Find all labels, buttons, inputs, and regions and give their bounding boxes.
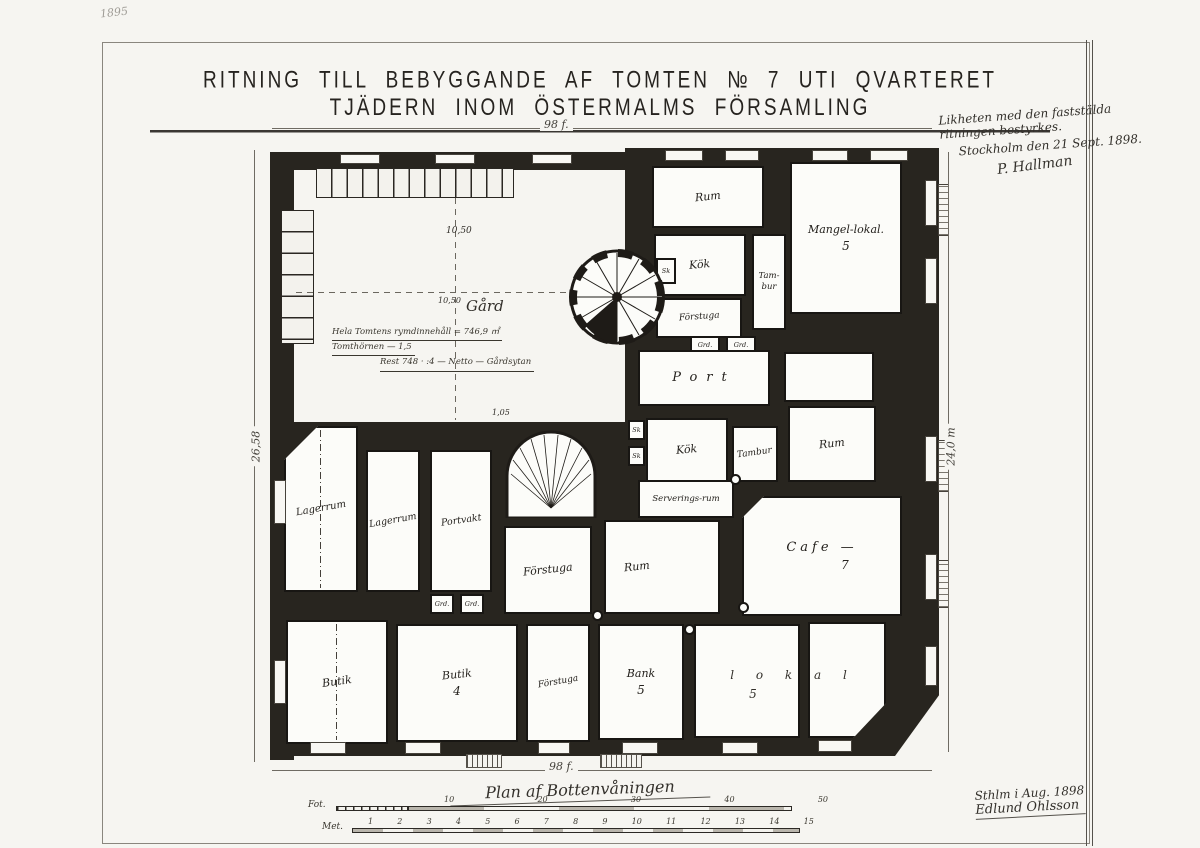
- room-unlabeled: [784, 352, 874, 402]
- window: [340, 154, 380, 164]
- courtyard-label-group: 10,50 Gård: [438, 296, 504, 315]
- dimension-bottom: 98 f.: [545, 760, 578, 773]
- half-round-staircase: [503, 426, 599, 518]
- courtyard-level-mark: 10,50: [446, 226, 472, 236]
- courtyard-skylight-grid: [316, 168, 514, 198]
- room-label: Tam-: [758, 271, 779, 282]
- room-rum-center: Rum: [604, 520, 720, 614]
- room-number: 5: [749, 687, 757, 701]
- signature-block: Sthlm i Aug. 1898 Edlund Ohlsson: [974, 783, 1085, 820]
- room-butik-1: Butik: [286, 620, 388, 744]
- room-label: Förstuga: [523, 561, 574, 580]
- room-sk-mid-a: Sk: [628, 420, 645, 440]
- window: [925, 646, 937, 686]
- window: [925, 554, 937, 600]
- column-lokal: [684, 624, 695, 635]
- room-label: Portvakt: [440, 512, 482, 529]
- pencil-note: 1895: [99, 5, 128, 21]
- room-label: Rum: [623, 559, 650, 575]
- room-kok-mid: Kök: [646, 418, 728, 482]
- dimension-line-top: [272, 128, 932, 129]
- window: [818, 740, 852, 752]
- room-label: Grd.: [465, 600, 480, 608]
- column-tambur: [730, 474, 741, 485]
- room-cafe: Cafe — 7: [742, 496, 902, 616]
- room-sk-mid-b: Sk: [628, 446, 645, 466]
- room-label: Grd.: [734, 341, 749, 349]
- room-label: Grd.: [435, 600, 450, 608]
- room-label: Rum: [694, 189, 721, 205]
- floor-plan: 10,50 10,50 Gård Hela Tomtens rymdinnehå…: [270, 140, 938, 765]
- room-label: Kök: [676, 442, 698, 458]
- window: [405, 742, 441, 754]
- calc-line-3: Rest 748 · :4 — Netto — Gårdsytan: [380, 356, 534, 371]
- room-tambur-top: Tam- bur: [752, 234, 786, 330]
- window: [870, 150, 908, 161]
- window: [925, 180, 937, 226]
- room-label: Sk: [632, 452, 640, 460]
- courtyard-label: Gård: [466, 297, 504, 315]
- room-lokal-label-group: l o k a l 5: [708, 664, 878, 702]
- room-label: Butik: [441, 667, 472, 684]
- scale-bar-meter: Met. 123456789101112131415: [352, 820, 800, 838]
- scale-fot-ticks: 1020304050: [444, 795, 828, 804]
- room-forstuga-bot: Förstuga: [526, 624, 590, 742]
- spiral-staircase: [567, 247, 667, 347]
- room-label: Kök: [689, 257, 711, 273]
- scale-fot-label: Fot.: [308, 800, 326, 810]
- window: [725, 150, 759, 161]
- room-butik-4: Butik 4: [396, 624, 518, 742]
- room-forstuga-top: Förstuga: [656, 298, 742, 338]
- room-serveringsrum: Serverings-rum: [638, 480, 734, 518]
- column-rum-center: [592, 610, 603, 621]
- courtyard-construction-line-h: [296, 292, 568, 293]
- room-label: bur: [762, 282, 777, 293]
- room-bank: Bank 5: [598, 624, 684, 740]
- room-label: Tambur: [737, 446, 773, 462]
- window: [435, 154, 475, 164]
- room-label: l o k a l: [730, 668, 856, 682]
- room-label: Cafe —: [786, 540, 857, 556]
- window: [274, 660, 286, 704]
- room-label: Lagerrum: [295, 498, 347, 519]
- room-label: Mangel-lokal.: [808, 223, 884, 237]
- room-tambur-mid: Tambur: [732, 426, 778, 482]
- window: [925, 436, 937, 482]
- room-label: Butik: [321, 673, 352, 691]
- room-label: Förstuga: [678, 311, 719, 325]
- room-grd-d: Grd.: [460, 594, 484, 614]
- entrance-steps: [600, 754, 642, 768]
- drawing-title: RITNING TILL BEBYGGANDE AF TOMTEN № 7 UT…: [150, 68, 1050, 133]
- window: [925, 258, 937, 304]
- room-label: Port: [672, 370, 736, 386]
- window: [274, 480, 286, 524]
- window: [665, 150, 703, 161]
- dimension-top: 98 f.: [540, 118, 573, 131]
- window: [722, 742, 758, 754]
- room-number: 4: [453, 684, 461, 698]
- scale-meter-label: Met.: [322, 822, 343, 832]
- column-cafe: [738, 602, 749, 613]
- scale-bar-fot: Fot. 1020304050: [336, 798, 792, 816]
- scale-fot-subdivisions: [336, 806, 408, 811]
- room-forstuga-mid: Förstuga: [504, 526, 592, 614]
- courtyard-small-mark: 1,05: [492, 408, 510, 417]
- room-lagerrum-1: Lagerrum: [284, 426, 358, 592]
- room-port: Port: [638, 350, 770, 406]
- butik-centerline: [336, 624, 337, 740]
- window: [622, 742, 658, 754]
- courtyard-calculation-note: Hela Tomtens rymdinnehåll = 746,9 ㎡ Tomt…: [332, 326, 534, 372]
- room-portvakt: Portvakt: [430, 450, 492, 592]
- drawing-sheet: 1895 RITNING TILL BEBYGGANDE AF TOMTEN №…: [0, 0, 1200, 848]
- room-label: Rum: [818, 436, 845, 452]
- window: [310, 742, 346, 754]
- dimension-right: 24,0 m: [945, 423, 958, 469]
- calc-line-2: Tomthörnen — 1,5: [332, 341, 415, 356]
- room-label: Lagerrum: [368, 511, 417, 531]
- room-mangel-lokal: Mangel-lokal. 5: [790, 162, 902, 314]
- scale-fot-bar: [408, 806, 792, 811]
- room-label: Sk: [632, 426, 640, 434]
- room-number: 7: [841, 558, 849, 572]
- lagerrum-centerline: [320, 430, 321, 588]
- courtyard-gard-level: 10,50: [438, 296, 461, 305]
- room-number: 5: [842, 239, 850, 253]
- window: [812, 150, 848, 161]
- room-rum-right: Rum: [788, 406, 876, 482]
- room-number: 5: [637, 683, 645, 697]
- room-label: Grd.: [698, 341, 713, 349]
- room-label: Bank: [627, 667, 655, 681]
- dimension-line-bottom: [272, 770, 932, 771]
- room-lagerrum-2: Lagerrum: [366, 450, 420, 592]
- window: [532, 154, 572, 164]
- room-label: Serverings-rum: [652, 494, 719, 505]
- scale-meter-ticks: 123456789101112131415: [368, 817, 814, 826]
- room-label: Förstuga: [537, 674, 579, 692]
- calc-line-1: Hela Tomtens rymdinnehåll = 746,9 ㎡: [332, 326, 502, 341]
- entrance-steps: [466, 754, 502, 768]
- dimension-left: 26,58: [249, 427, 262, 467]
- room-grd-c: Grd.: [430, 594, 454, 614]
- courtyard-side-cells: [281, 210, 314, 344]
- window: [538, 742, 570, 754]
- scale-meter-bar: [352, 828, 800, 833]
- room-rum-top: Rum: [652, 166, 764, 228]
